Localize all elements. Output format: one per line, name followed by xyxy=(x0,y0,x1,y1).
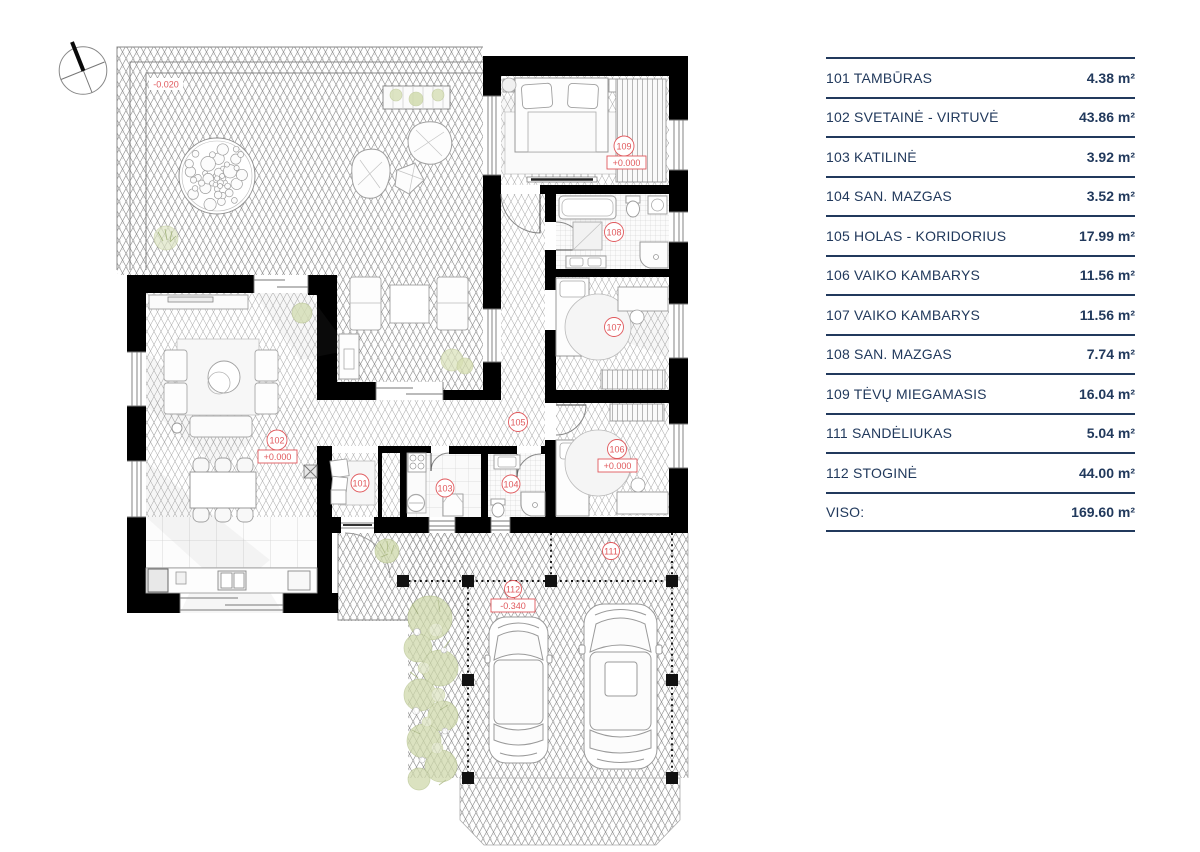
svg-text:+0.000: +0.000 xyxy=(613,158,641,168)
svg-text:107: 107 xyxy=(606,323,621,333)
svg-text:109: 109 xyxy=(616,142,631,152)
svg-text:104: 104 xyxy=(503,480,518,490)
svg-text:-0.020: -0.020 xyxy=(153,80,179,90)
svg-text:106: 106 xyxy=(609,445,624,455)
svg-text:105: 105 xyxy=(510,418,525,428)
svg-text:+0.000: +0.000 xyxy=(604,461,632,471)
svg-text:102: 102 xyxy=(269,436,284,446)
svg-text:+0.000: +0.000 xyxy=(264,452,292,462)
svg-text:103: 103 xyxy=(437,484,452,494)
svg-text:101: 101 xyxy=(352,479,367,489)
svg-text:111: 111 xyxy=(604,547,618,557)
svg-text:108: 108 xyxy=(606,228,621,238)
svg-text:-0.340: -0.340 xyxy=(500,601,526,611)
svg-text:112: 112 xyxy=(506,585,520,595)
